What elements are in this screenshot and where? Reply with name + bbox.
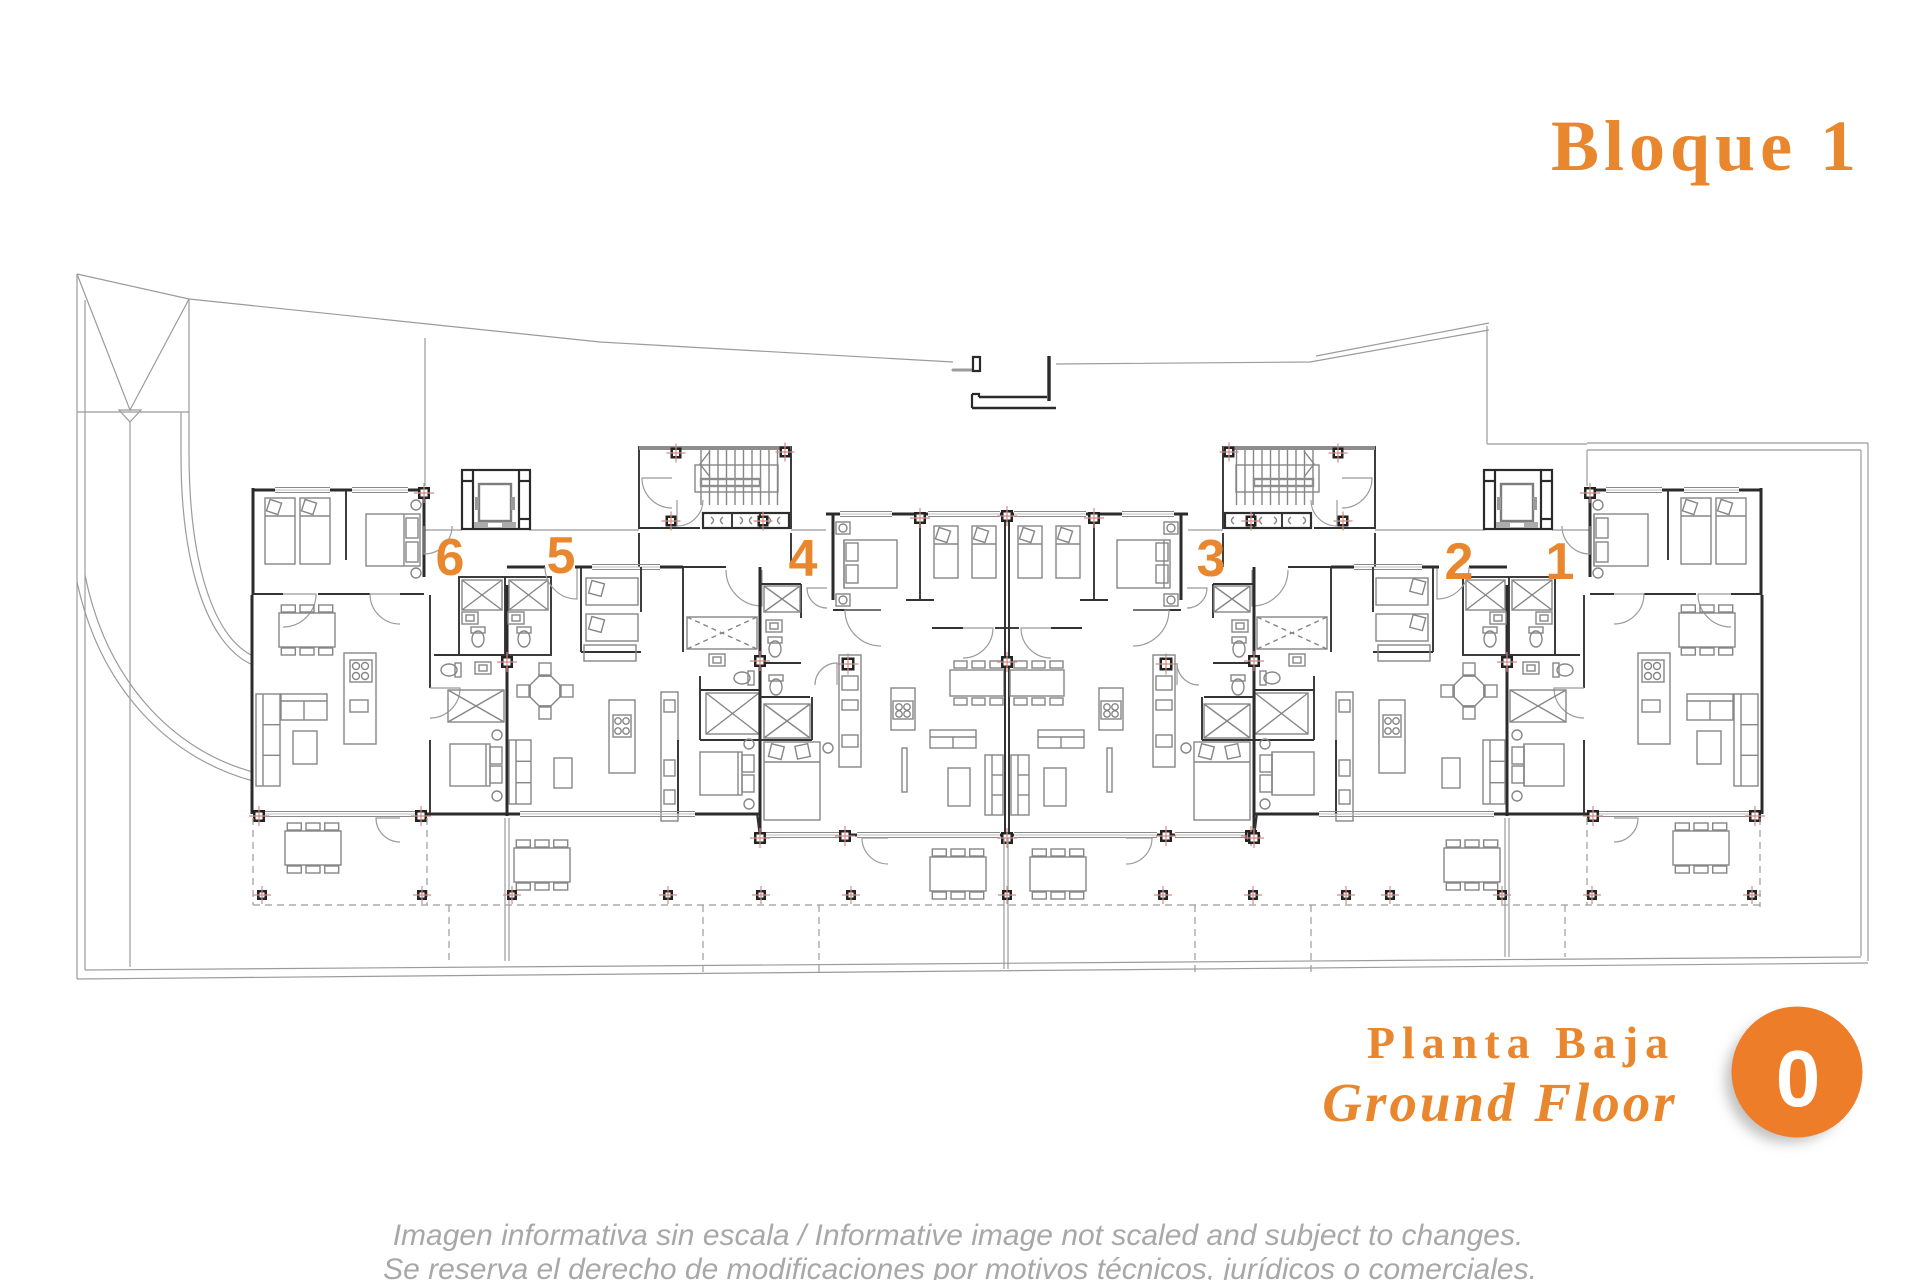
svg-text:Ground Floor: Ground Floor: [1322, 1072, 1677, 1133]
svg-text:4: 4: [789, 530, 818, 588]
svg-text:Planta Baja: Planta Baja: [1367, 1017, 1675, 1068]
svg-text:5: 5: [547, 527, 576, 585]
svg-text:Bloque 1: Bloque 1: [1551, 106, 1861, 186]
svg-text:0: 0: [1776, 1034, 1821, 1123]
svg-text:Se reserva el derecho de modif: Se reserva el derecho de modificaciones …: [383, 1253, 1537, 1280]
svg-text:Imagen informativa sin escala: Imagen informativa sin escala / Informat…: [393, 1219, 1524, 1252]
svg-text:1: 1: [1546, 533, 1575, 591]
svg-text:2: 2: [1445, 533, 1474, 591]
svg-text:6: 6: [436, 529, 465, 587]
svg-text:3: 3: [1197, 530, 1226, 588]
